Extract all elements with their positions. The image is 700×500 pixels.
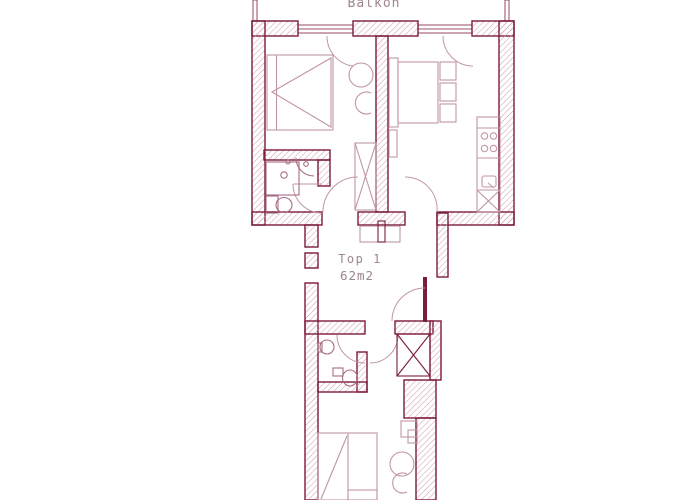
wall-segment xyxy=(305,253,318,268)
bed-triangle xyxy=(272,58,331,127)
floor-plan-drawing: Balkon xyxy=(0,0,700,500)
balcony-railing-right xyxy=(505,0,509,21)
wall-right-upper xyxy=(437,213,448,277)
radiator xyxy=(401,421,417,437)
room-right xyxy=(389,36,500,212)
shelf-unit xyxy=(440,83,456,101)
armchair xyxy=(349,63,373,87)
entry-door-arc xyxy=(392,288,425,321)
bed-foot xyxy=(348,490,377,500)
wall-segment xyxy=(305,225,318,247)
toilet-cistern xyxy=(333,368,343,376)
bathroom2-wall-bottom xyxy=(318,382,367,392)
walls-top-section xyxy=(252,21,514,225)
shower-drain xyxy=(281,172,287,178)
bed-triangle-edge xyxy=(321,436,347,499)
stove-burner xyxy=(481,145,487,151)
balcony-railing-left xyxy=(253,0,257,21)
bathroom-upper xyxy=(264,150,330,213)
balcony: Balkon xyxy=(253,0,509,21)
bathroom-door-arc xyxy=(293,184,322,213)
stove-burner xyxy=(481,133,487,139)
sink xyxy=(482,176,496,187)
bathroom-wall-right xyxy=(318,160,330,186)
hall-wardrobe xyxy=(360,226,400,242)
shelf-unit xyxy=(440,62,456,80)
wall-segment xyxy=(395,321,433,334)
unit-label: Top 1 xyxy=(338,252,382,266)
wall-segment xyxy=(305,321,365,334)
stove-burner xyxy=(490,145,496,151)
wall-pilaster xyxy=(404,380,436,418)
stove-burner xyxy=(490,133,496,139)
wall-outer-right xyxy=(499,21,514,225)
wall-middle xyxy=(376,36,388,212)
kitchen-counter xyxy=(477,117,500,212)
wall-outer-left xyxy=(252,21,265,225)
bathroom-wall-top xyxy=(264,150,330,160)
wall-right-lower xyxy=(416,418,436,500)
wall-right-lower xyxy=(423,277,427,322)
wall-segment xyxy=(252,212,322,225)
radiator xyxy=(389,130,397,157)
side-table xyxy=(355,92,371,114)
bed-headboard xyxy=(389,58,398,127)
room-door-arc xyxy=(405,177,437,212)
area-label: 62m2 xyxy=(340,268,374,283)
lower-section xyxy=(318,321,441,500)
balcony-label: Balkon xyxy=(348,0,401,11)
wall-segment xyxy=(430,321,441,380)
wall-left-lower xyxy=(305,283,318,500)
wall-segment xyxy=(358,212,405,225)
shelf-unit xyxy=(440,104,456,122)
floor-plan: Balkon xyxy=(0,0,700,500)
basin-faucet xyxy=(304,162,309,167)
wall-segment xyxy=(353,21,418,36)
bed xyxy=(398,62,438,123)
corridor-door-arc xyxy=(370,335,398,363)
